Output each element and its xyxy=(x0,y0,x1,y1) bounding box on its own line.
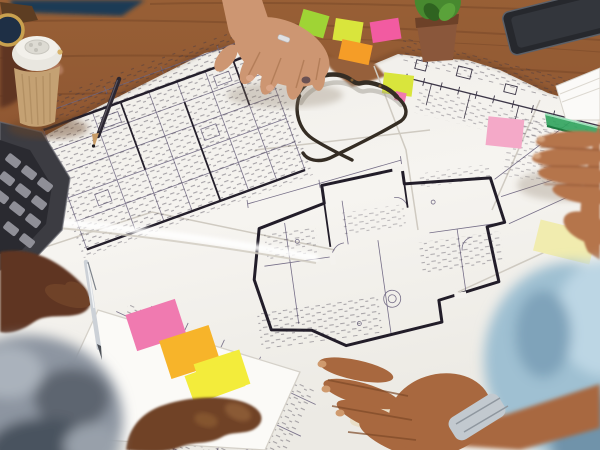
cup-lid-inner xyxy=(25,40,49,54)
sticky-note-hot-pink xyxy=(370,18,402,43)
lid-tab xyxy=(57,49,62,54)
fingernail xyxy=(336,410,345,417)
fingernail xyxy=(533,153,541,159)
fingernail xyxy=(266,85,274,91)
pencil-lead xyxy=(92,144,95,147)
sticky-note-lime xyxy=(332,18,363,44)
fingernail xyxy=(322,386,331,393)
fingernail xyxy=(537,136,545,142)
hand-shadow xyxy=(227,82,343,108)
watch-face xyxy=(0,15,23,45)
dark-fingernail xyxy=(302,77,311,84)
photo-team-blueprints xyxy=(0,0,600,450)
sticky-note-soft-pink xyxy=(486,116,525,149)
fingernail xyxy=(318,361,327,368)
fingernail xyxy=(246,75,254,81)
